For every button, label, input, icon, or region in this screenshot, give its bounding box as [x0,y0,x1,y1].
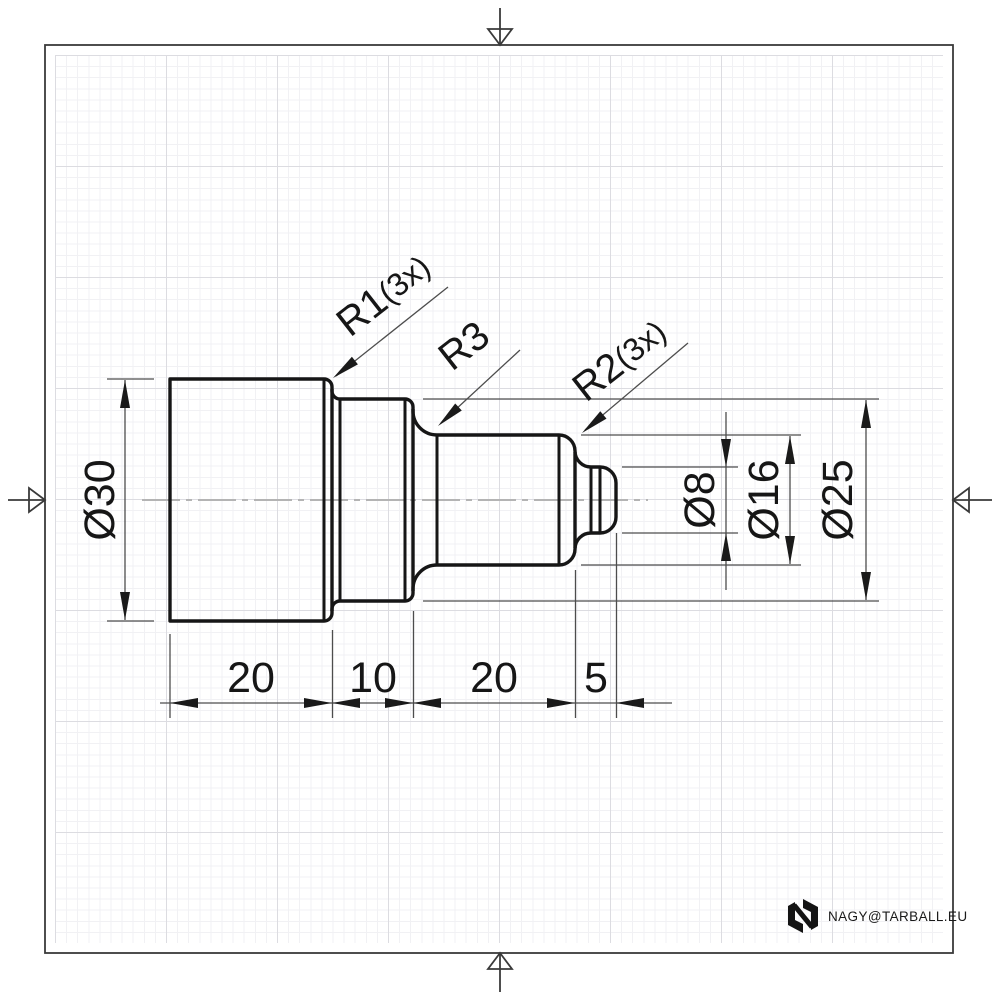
dim-label-diameter-25: Ø25 [814,459,862,540]
callout-label-r3: R3 [430,313,497,379]
dim-label-length-20a: 20 [227,654,275,702]
callout-label-r1: R1(3x) [328,245,439,345]
radius-callout-r1: R1(3x) [328,245,448,378]
dimension-length-chain: 20 10 20 5 [160,654,672,708]
center-mark-arrow-right [953,488,992,512]
center-mark-arrow-top [488,8,512,45]
radius-callout-r3: R3 [430,313,520,426]
dimension-diameter-25: Ø25 [814,400,871,600]
radius-callout-r2: R2(3x) [564,310,688,433]
dim-label-length-20b: 20 [470,654,518,702]
part-tangent-edges [324,380,600,620]
dim-label-diameter-8: Ø8 [676,471,724,528]
center-mark-arrow-left [8,488,45,512]
dim-label-length-10: 10 [349,654,397,702]
n-logomark-icon [781,896,825,936]
dimension-diameter-30: Ø30 [76,380,130,620]
cad-technical-drawing: Ø30 Ø25 Ø16 Ø8 [0,0,1000,1000]
brand-email: NAGY@TARBALL.EU [828,909,968,924]
dimension-diameter-16: Ø16 [740,436,795,564]
dim-label-diameter-30: Ø30 [76,459,124,540]
dimension-diameter-8: Ø8 [676,412,731,590]
dim-label-diameter-16: Ø16 [740,459,788,540]
drawing-sheet: Ø30 Ø25 Ø16 Ø8 [0,0,1000,1000]
dim-label-length-5: 5 [584,654,608,702]
brand-logo: NAGY@TARBALL.EU [781,896,968,936]
center-mark-arrow-bottom [488,953,512,992]
callout-label-r2: R2(3x) [564,310,675,410]
